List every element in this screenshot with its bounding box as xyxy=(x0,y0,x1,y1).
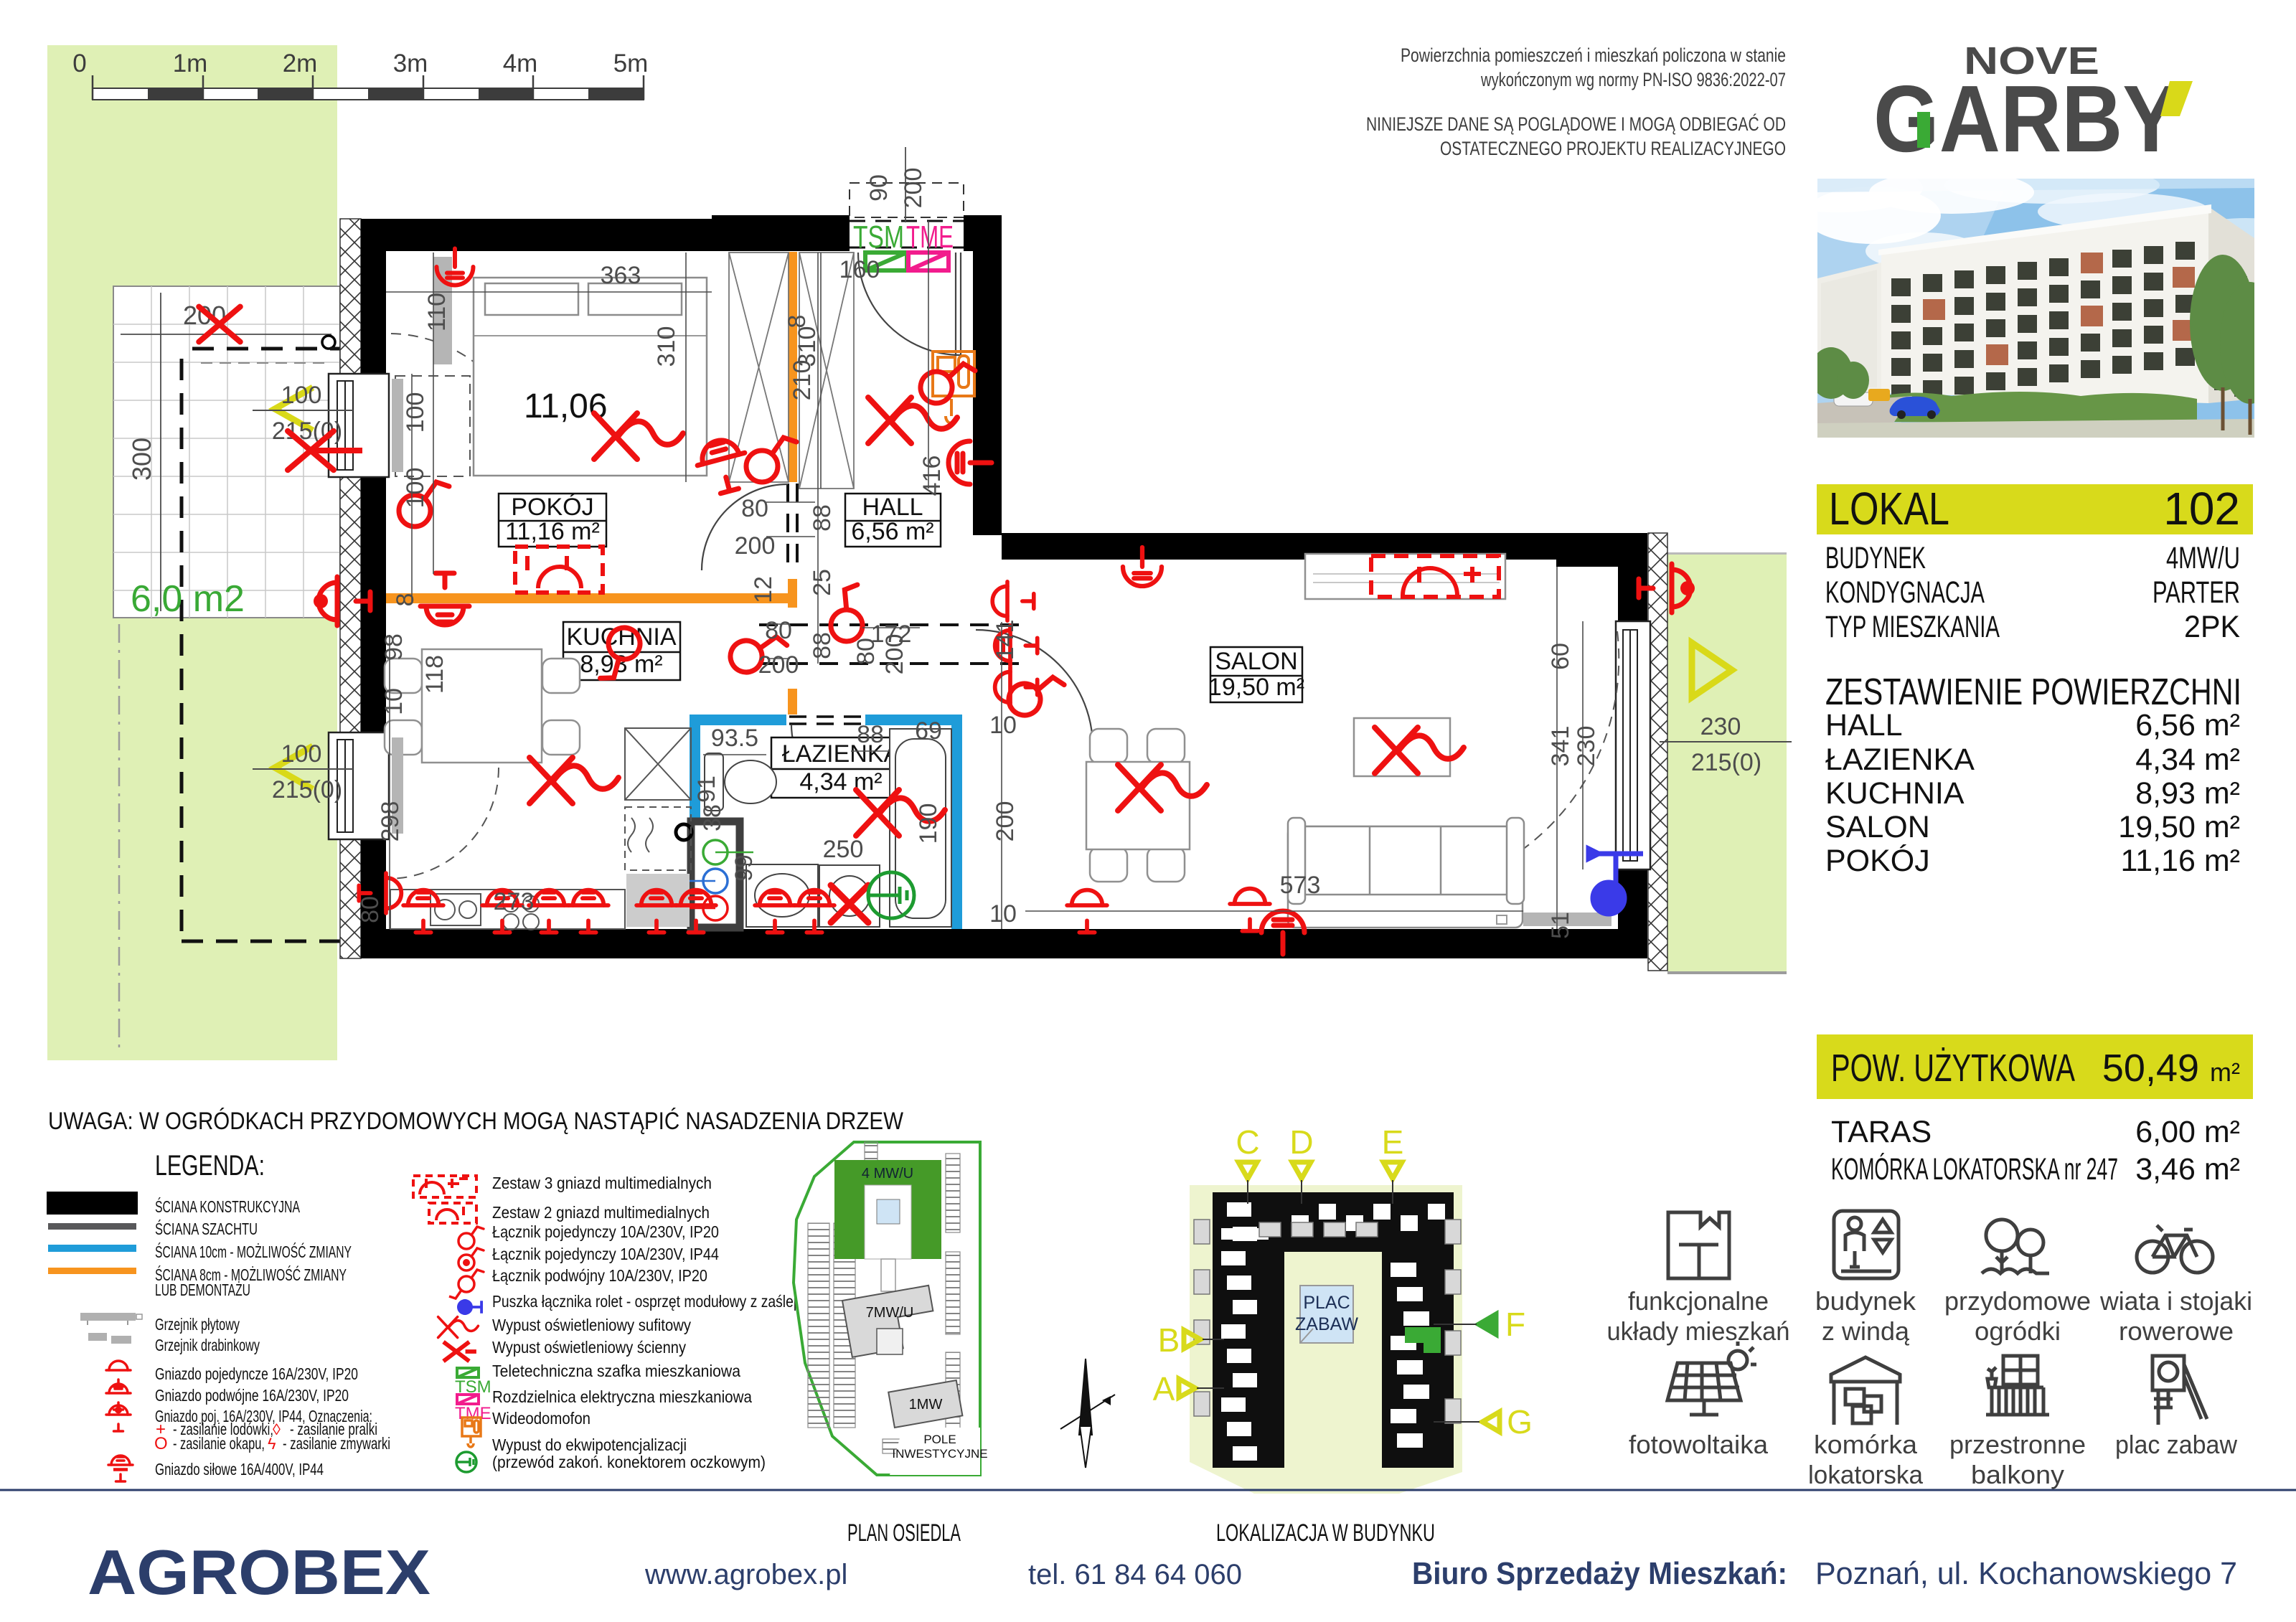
svg-text:363: 363 xyxy=(601,262,641,289)
svg-text:O: O xyxy=(154,1434,168,1453)
svg-text:SALON: SALON xyxy=(1825,810,1930,844)
svg-text:2PK: 2PK xyxy=(2184,610,2240,644)
svg-text:TARAS: TARAS xyxy=(1831,1115,1932,1149)
svg-text:88: 88 xyxy=(809,504,836,532)
svg-text:273: 273 xyxy=(494,888,535,915)
svg-text:przestronne: przestronne xyxy=(1949,1430,2086,1459)
svg-text:1m: 1m xyxy=(173,49,208,77)
svg-text:Wypust oświetleniowy sufitowy: Wypust oświetleniowy sufitowy xyxy=(492,1316,691,1334)
svg-text:rowerowe: rowerowe xyxy=(2119,1316,2234,1346)
svg-text:Grzejnik drabinkowy: Grzejnik drabinkowy xyxy=(155,1336,260,1354)
svg-text:ogródki: ogródki xyxy=(1975,1316,2061,1346)
svg-text:SALON: SALON xyxy=(1215,648,1297,675)
svg-text:LOKAL: LOKAL xyxy=(1829,483,1949,534)
svg-text:102: 102 xyxy=(2163,483,2240,534)
svg-text:200: 200 xyxy=(758,651,799,679)
svg-text:19,50 m²: 19,50 m² xyxy=(1208,674,1304,701)
svg-text:tel. 61 84 64 060: tel. 61 84 64 060 xyxy=(1028,1559,1242,1590)
svg-text:funkcjonalne: funkcjonalne xyxy=(1628,1286,1769,1316)
svg-text:układy mieszkań: układy mieszkań xyxy=(1607,1316,1790,1346)
svg-text:3,46 m²: 3,46 m² xyxy=(2135,1152,2240,1187)
svg-text:4MW/U: 4MW/U xyxy=(2166,541,2240,575)
svg-text:8: 8 xyxy=(392,593,419,607)
svg-text:(przewód zakoń. konektorem ocz: (przewód zakoń. konektorem oczkowym) xyxy=(492,1453,766,1471)
svg-text:A: A xyxy=(1153,1370,1175,1408)
svg-text:LUB DEMONTAŻU: LUB DEMONTAŻU xyxy=(155,1281,250,1299)
svg-text:NINIEJSZE DANE SĄ POGLĄDOWE I: NINIEJSZE DANE SĄ POGLĄDOWE I MOGĄ ODBIE… xyxy=(1366,113,1786,135)
svg-text:11,06: 11,06 xyxy=(524,387,608,425)
svg-text:6,00 m²: 6,00 m² xyxy=(2135,1115,2240,1149)
svg-text:215(0): 215(0) xyxy=(272,776,342,803)
svg-text:141: 141 xyxy=(992,620,1019,661)
svg-text:Wypust oświetleniowy ścienny: Wypust oświetleniowy ścienny xyxy=(492,1338,686,1357)
svg-text:51: 51 xyxy=(1547,912,1574,939)
svg-text:93.5: 93.5 xyxy=(711,725,758,752)
svg-text:wykończonym wg normy PN-ISO 98: wykończonym wg normy PN-ISO 9836:2022-07 xyxy=(1480,69,1786,90)
svg-text:230: 230 xyxy=(1573,726,1600,767)
svg-text:ZESTAWIENIE POWIERZCHNI: ZESTAWIENIE POWIERZCHNI xyxy=(1825,671,2241,713)
svg-text:D: D xyxy=(1289,1123,1313,1161)
svg-text:C: C xyxy=(1236,1123,1259,1161)
svg-text:200: 200 xyxy=(992,801,1019,842)
svg-text:0: 0 xyxy=(72,49,86,77)
svg-text:Wideodomofon: Wideodomofon xyxy=(492,1409,591,1428)
svg-text:80: 80 xyxy=(765,617,792,644)
svg-text:10: 10 xyxy=(989,712,1017,739)
svg-text:INWESTYCYJNE: INWESTYCYJNE xyxy=(892,1447,987,1461)
svg-text:plac zabaw: plac zabaw xyxy=(2115,1430,2238,1459)
svg-text:www.agrobex.pl: www.agrobex.pl xyxy=(644,1559,847,1590)
svg-text:BUDYNEK: BUDYNEK xyxy=(1825,541,1926,575)
svg-text:wiata i stojaki: wiata i stojaki xyxy=(2099,1286,2252,1316)
svg-text:5m: 5m xyxy=(613,49,649,77)
svg-text:88: 88 xyxy=(857,721,884,748)
svg-text:ŚCIANA KONSTRUKCYJNA: ŚCIANA KONSTRUKCYJNA xyxy=(155,1197,300,1216)
svg-text:60: 60 xyxy=(1547,643,1574,670)
svg-text:PLAC: PLAC xyxy=(1303,1293,1350,1313)
svg-text:11,16 m²: 11,16 m² xyxy=(505,518,600,545)
svg-text:250: 250 xyxy=(823,836,864,863)
svg-text:416: 416 xyxy=(918,456,946,496)
svg-text:budynek: budynek xyxy=(1815,1286,1916,1316)
svg-text:215(0): 215(0) xyxy=(1691,749,1761,776)
svg-text:98: 98 xyxy=(380,633,408,661)
svg-text:190: 190 xyxy=(915,803,942,844)
svg-text:ZABAW: ZABAW xyxy=(1295,1314,1358,1334)
svg-text:ϟ: ϟ xyxy=(268,1435,276,1453)
svg-text:lokatorska: lokatorska xyxy=(1808,1460,1924,1489)
svg-text:4m: 4m xyxy=(503,49,538,77)
svg-text:100: 100 xyxy=(281,382,322,409)
svg-text:230: 230 xyxy=(1700,713,1741,740)
svg-text:z windą: z windą xyxy=(1822,1316,1910,1346)
svg-text:POW. UŻYTKOWA: POW. UŻYTKOWA xyxy=(1831,1047,2075,1090)
svg-text:Gniazdo siłowe 16A/400V, IP44: Gniazdo siłowe 16A/400V, IP44 xyxy=(155,1460,324,1479)
svg-text:7MW/U: 7MW/U xyxy=(866,1305,914,1321)
svg-text:Zestaw 3 gniazd multimedialnyc: Zestaw 3 gniazd multimedialnych xyxy=(492,1174,712,1192)
svg-text:80: 80 xyxy=(852,638,880,665)
svg-text:2m: 2m xyxy=(283,49,318,77)
svg-text:99: 99 xyxy=(730,854,758,882)
svg-text:Grzejnik płytowy: Grzejnik płytowy xyxy=(155,1315,240,1334)
svg-text:UWAGA: W OGRÓDKACH PRZYDOMOWYC: UWAGA: W OGRÓDKACH PRZYDOMOWYCH MOGĄ NAS… xyxy=(48,1108,903,1135)
svg-text:100: 100 xyxy=(402,392,429,433)
svg-text:KOMÓRKA LOKATORSKA nr 247: KOMÓRKA LOKATORSKA nr 247 xyxy=(1831,1152,2118,1187)
svg-text:8,93 m²: 8,93 m² xyxy=(2135,776,2240,811)
svg-text:Łącznik pojedynczy 10A/230V, I: Łącznik pojedynczy 10A/230V, IP44 xyxy=(492,1245,719,1263)
svg-text:ŁAZIENKA: ŁAZIENKA xyxy=(1825,742,1975,777)
svg-text:200: 200 xyxy=(900,168,927,209)
svg-text:PLAN OSIEDLA: PLAN OSIEDLA xyxy=(847,1519,961,1547)
svg-text:LEGENDA:: LEGENDA: xyxy=(155,1150,265,1182)
svg-text:6,0 m2: 6,0 m2 xyxy=(131,578,245,620)
svg-text:38: 38 xyxy=(699,804,726,831)
svg-text:4 MW/U: 4 MW/U xyxy=(862,1166,913,1182)
svg-text:341: 341 xyxy=(1547,726,1574,767)
svg-text:ŚCIANA SZACHTU: ŚCIANA SZACHTU xyxy=(155,1219,258,1238)
svg-text:298: 298 xyxy=(377,801,404,842)
svg-text:19,50 m²: 19,50 m² xyxy=(2118,810,2240,844)
svg-text:Puszka łącznika rolet - osprzę: Puszka łącznika rolet - osprzęt modułowy… xyxy=(492,1292,816,1311)
svg-text:573: 573 xyxy=(1280,872,1321,899)
svg-text:AGROBEX: AGROBEX xyxy=(88,1537,430,1608)
svg-text:fotowoltaika: fotowoltaika xyxy=(1629,1430,1769,1459)
svg-text:8,93 m²: 8,93 m² xyxy=(580,651,662,678)
svg-text:przydomowe: przydomowe xyxy=(1944,1286,2091,1316)
svg-text:Powierzchnia pomieszczeń i mie: Powierzchnia pomieszczeń i mieszkań poli… xyxy=(1401,44,1786,66)
svg-text:KONDYGNACJA: KONDYGNACJA xyxy=(1825,575,1985,610)
svg-text:Wypust do ekwipotencjalizacji: Wypust do ekwipotencjalizacji xyxy=(492,1435,687,1454)
svg-text:88: 88 xyxy=(809,632,836,659)
svg-text:LOKALIZACJA W BUDYNKU: LOKALIZACJA W BUDYNKU xyxy=(1216,1519,1435,1547)
svg-text:Łącznik podwójny 10A/230V, IP2: Łącznik podwójny 10A/230V, IP20 xyxy=(492,1266,707,1285)
svg-text:komórka: komórka xyxy=(1814,1430,1918,1459)
svg-text:11,16 m²: 11,16 m² xyxy=(2121,844,2241,878)
svg-text:G: G xyxy=(1507,1403,1533,1441)
svg-text:100: 100 xyxy=(281,740,322,768)
svg-text:TSM: TSM xyxy=(853,220,904,255)
svg-text:Gniazdo podwójne 16A/230V, IP2: Gniazdo podwójne 16A/230V, IP20 xyxy=(155,1386,349,1405)
svg-text:310: 310 xyxy=(653,326,680,367)
svg-text:25: 25 xyxy=(809,569,836,596)
svg-text:110: 110 xyxy=(423,293,451,331)
svg-text:OSTATECZNEGO PROJEKTU REALIZAC: OSTATECZNEGO PROJEKTU REALIZACYJNEGO xyxy=(1440,138,1786,159)
svg-text:balkony: balkony xyxy=(1971,1460,2064,1489)
svg-text:ŚCIANA 10cm - MOŻLIWOŚĆ ZMIANY: ŚCIANA 10cm - MOŻLIWOŚĆ ZMIANY xyxy=(155,1242,352,1261)
svg-text:HALL: HALL xyxy=(862,494,923,521)
svg-text:10: 10 xyxy=(380,688,408,715)
svg-text:69: 69 xyxy=(915,717,942,745)
svg-text:4,34 m²: 4,34 m² xyxy=(799,768,882,796)
svg-text:Łącznik pojedynczy 10A/230V, I: Łącznik pojedynczy 10A/230V, IP20 xyxy=(492,1222,719,1241)
svg-text:Rozdzielnica elektryczna miesz: Rozdzielnica elektryczna mieszkaniowa xyxy=(492,1387,752,1406)
svg-text:POKÓJ: POKÓJ xyxy=(1825,844,1930,878)
svg-text:4,34 m²: 4,34 m² xyxy=(2135,742,2240,777)
svg-text:80: 80 xyxy=(357,896,384,923)
svg-text:HALL: HALL xyxy=(1825,708,1903,742)
svg-text:B: B xyxy=(1158,1321,1180,1359)
svg-text:- zasilanie okapu,: - zasilanie okapu, xyxy=(173,1434,265,1453)
svg-text:1MW: 1MW xyxy=(909,1397,943,1413)
svg-text:91: 91 xyxy=(693,775,720,803)
svg-text:E: E xyxy=(1382,1123,1404,1161)
svg-text:- zasilanie zmywarki: - zasilanie zmywarki xyxy=(283,1434,390,1453)
svg-text:Poznań, ul. Kochanowskiego 7: Poznań, ul. Kochanowskiego 7 xyxy=(1815,1556,2237,1591)
svg-text:160: 160 xyxy=(839,256,880,283)
svg-text:PARTER: PARTER xyxy=(2152,575,2240,610)
svg-text:Gniazdo pojedyncze 16A/230V, I: Gniazdo pojedyncze 16A/230V, IP20 xyxy=(155,1364,358,1383)
svg-text:300: 300 xyxy=(127,438,156,481)
svg-text:12: 12 xyxy=(750,576,777,603)
svg-text:10: 10 xyxy=(989,900,1017,928)
svg-text:6,56 m²: 6,56 m² xyxy=(851,518,933,545)
svg-text:POLE: POLE xyxy=(923,1433,956,1446)
svg-text:8: 8 xyxy=(784,315,811,329)
svg-text:118: 118 xyxy=(421,655,448,694)
svg-text:3m: 3m xyxy=(393,49,428,77)
svg-text:POKÓJ: POKÓJ xyxy=(511,494,593,521)
svg-text:100: 100 xyxy=(402,468,429,509)
svg-text:TYP MIESZKANIA: TYP MIESZKANIA xyxy=(1825,610,2000,644)
svg-text:F: F xyxy=(1505,1306,1525,1343)
svg-text:Zestaw 2 gniazd multimedialnyc: Zestaw 2 gniazd multimedialnych xyxy=(492,1203,710,1222)
svg-text:90: 90 xyxy=(865,174,893,202)
svg-text:80: 80 xyxy=(741,495,768,522)
svg-text:6,56 m²: 6,56 m² xyxy=(2135,708,2240,742)
svg-text:TME: TME xyxy=(906,220,954,255)
svg-text:KUCHNIA: KUCHNIA xyxy=(1825,776,1965,811)
svg-text:Biuro Sprzedaży Mieszkań:: Biuro Sprzedaży Mieszkań: xyxy=(1412,1556,1787,1591)
svg-text:Teletechniczna szafka mieszkan: Teletechniczna szafka mieszkaniowa xyxy=(492,1362,740,1380)
svg-text:210: 210 xyxy=(789,360,816,401)
svg-text:200: 200 xyxy=(881,634,908,675)
